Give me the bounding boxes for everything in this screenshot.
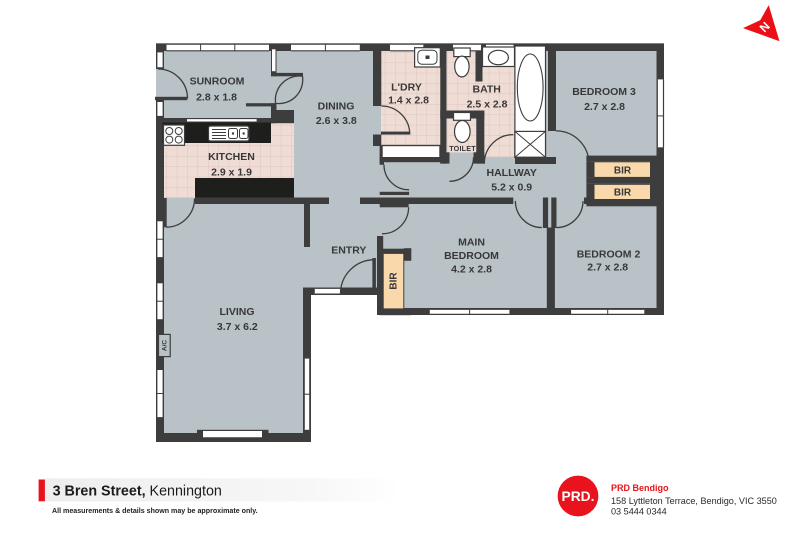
svg-text:LIVING: LIVING [219,306,254,318]
svg-text:L'DRY: L'DRY [391,82,422,94]
svg-text:MAIN: MAIN [458,237,485,249]
svg-text:BEDROOM 2: BEDROOM 2 [577,248,641,260]
svg-text:PRD.: PRD. [562,489,595,504]
svg-text:KITCHEN: KITCHEN [208,151,255,163]
svg-text:ENTRY: ENTRY [331,245,366,257]
svg-text:3 Bren Street, Kennington: 3 Bren Street, Kennington [53,484,222,500]
svg-text:2.5 x 2.8: 2.5 x 2.8 [467,98,508,110]
svg-text:BIR: BIR [389,272,400,290]
svg-text:5.2 x 0.9: 5.2 x 0.9 [491,181,532,193]
svg-text:BEDROOM 3: BEDROOM 3 [572,86,636,98]
svg-text:158 Lyttleton Terrace, Bendigo: 158 Lyttleton Terrace, Bendigo, VIC 3550 [611,496,777,506]
svg-text:3.7 x 6.2: 3.7 x 6.2 [217,321,258,333]
svg-text:1.4 x 2.8: 1.4 x 2.8 [388,94,429,106]
svg-text:2.7 x 2.8: 2.7 x 2.8 [584,101,625,113]
svg-text:2.6 x 3.8: 2.6 x 3.8 [316,115,357,127]
svg-text:BATH: BATH [473,84,501,96]
svg-text:2.9 x 1.9: 2.9 x 1.9 [211,166,252,178]
svg-text:All measurements & details sho: All measurements & details shown may be … [52,507,258,515]
svg-text:BEDROOM: BEDROOM [444,250,499,262]
svg-text:SUNROOM: SUNROOM [190,76,245,88]
svg-text:BIR: BIR [614,165,632,176]
svg-text:2.7 x 2.8: 2.7 x 2.8 [587,261,628,273]
svg-text:4.2 x 2.8: 4.2 x 2.8 [451,264,492,276]
svg-text:PRD Bendigo: PRD Bendigo [611,483,669,493]
svg-text:A/C: A/C [162,340,169,352]
svg-text:2.8 x 1.8: 2.8 x 1.8 [196,91,237,103]
svg-text:BIR: BIR [614,188,632,199]
svg-text:DINING: DINING [318,101,355,113]
svg-text:03 5444 0344: 03 5444 0344 [611,507,667,517]
svg-text:HALLWAY: HALLWAY [487,167,537,179]
svg-text:TOILET: TOILET [449,144,476,153]
